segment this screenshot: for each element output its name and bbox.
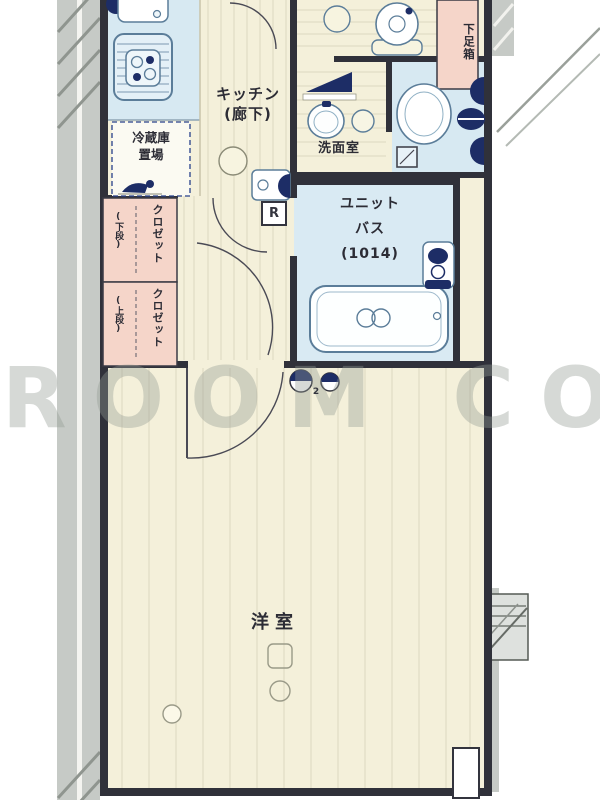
closet-upper-label: クロゼット (下段)	[103, 198, 177, 282]
western-room-label: 洋室	[220, 611, 330, 635]
watermark: ROOM CORE	[2, 350, 600, 446]
stove-icon	[114, 34, 172, 100]
water-heater-marker: R	[262, 203, 286, 225]
shoe-box-label: 下足箱	[440, 0, 476, 88]
closet-lower-label: クロゼット (上段)	[103, 282, 177, 366]
kitchen-sink-icon	[118, 0, 168, 22]
bathtub-icon	[310, 286, 448, 352]
floor-plan: ROOM CORE キッチン(廊下) 冷蔵庫置場 洗面室 ユニットバス(1014…	[0, 0, 600, 800]
stool-icon	[324, 6, 350, 32]
fridge-space-label: 冷蔵庫置場	[110, 130, 192, 164]
outlet-count: 2	[309, 386, 323, 398]
detector-icon-2	[163, 705, 181, 723]
downlight-icon	[219, 147, 247, 175]
unit-bath-label: ユニットバス(1014)	[300, 192, 440, 267]
drain-icon	[352, 110, 374, 132]
neighbor-door	[453, 748, 479, 798]
washroom-label: 洗面室	[294, 140, 384, 158]
kitchen-label: キッチン(廊下)	[196, 84, 300, 125]
